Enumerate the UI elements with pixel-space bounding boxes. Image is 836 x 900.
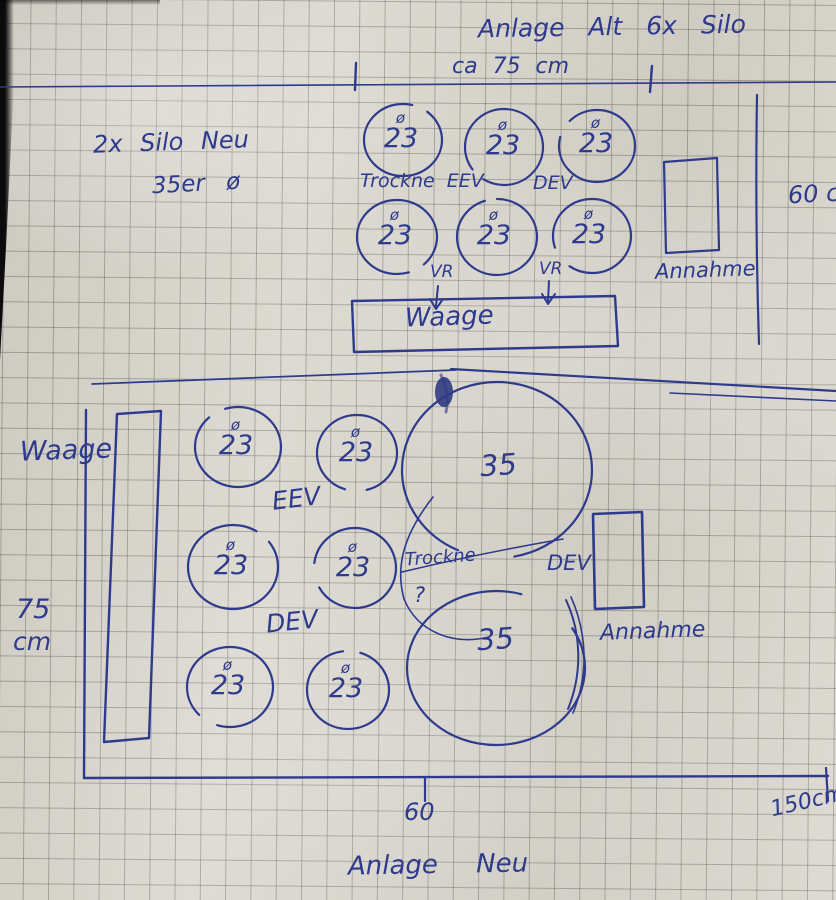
big-silo-value: 35 [479,449,518,482]
silo-label: ø 23 [572,208,606,249]
left-dimension-value: 75 [16,596,50,624]
dev-box-label: DEV [547,552,591,574]
lower-scale-label: Waage [20,435,113,467]
separator-line-short [670,393,836,401]
upper-right-boundary-line [756,95,759,344]
top-dimension-label: ca 75 cm [452,55,569,78]
silo-label: ø 23 [384,112,418,153]
lower-eev-label: EEV [271,483,323,515]
diameter-value: 23 [214,551,248,580]
silo-label: ø 23 [477,209,511,250]
silo-label: ø 23 [329,662,363,703]
right-dimension-label: 60 c [787,181,836,209]
lower-dev-label: DEV [265,606,320,638]
diameter-value: 23 [579,129,613,158]
big-silo-circle [407,591,585,745]
dryer-question-mark: ? [414,584,425,606]
diameter-value: 23 [336,553,370,582]
diameter-value: 23 [219,431,253,460]
separator-ink [92,369,836,412]
silo-label: ø 23 [214,539,248,580]
big-silo-value: 35 [476,623,515,656]
silo-label: ø 23 [378,209,412,250]
separator-line-right [451,369,836,391]
silo-label: ø 23 [336,541,370,582]
bottom-dimension-line [84,776,828,778]
lower-plan-ink [84,382,828,801]
dimension-tick-mid [650,66,652,92]
intake-box [664,158,719,253]
diameter-value: 23 [384,124,418,153]
lower-plan-title: Anlage Neu [348,850,529,880]
note-2x-silo-neu: 2x Silo Neu [93,127,250,158]
vr-label-right: VR [539,261,562,279]
diameter-value: 23 [572,220,606,249]
dev-box [593,512,644,609]
top-dimension-line [0,82,836,87]
left-dimension-unit: cm [13,629,51,655]
bottom-dimension-mid-label: 60 [404,800,435,825]
upper-scale-label: Waage [405,302,495,332]
diameter-value: 23 [211,671,245,700]
silo-label: ø 23 [579,117,613,158]
upper-intake-label: Annahme [655,257,756,283]
diameter-value: 23 [329,674,363,703]
silo-label: ø 23 [486,119,520,160]
upper-dev-label: DEV [533,174,573,194]
silo-label: ø 23 [211,659,245,700]
scale-box-tall [104,411,161,742]
vr-label-left: VR [430,264,453,282]
diameter-value: 23 [378,221,412,250]
vr-arrow-right [548,281,549,301]
dimension-tick-left [355,63,356,90]
diameter-value: 23 [477,221,511,250]
upper-dryer-eev-label: Trockne EEV [360,172,484,192]
note-35-diameter: 35er ø [151,170,240,199]
diameter-value: 23 [486,131,520,160]
lower-intake-label: Annahme [600,618,706,645]
diameter-value: 23 [339,438,373,467]
hand-drawn-silo-layout-sketch: Anlage Alt 6x Silo ca 75 cm 2x Silo Neu … [0,0,836,900]
big-silo-edge-stroke [566,600,578,709]
upper-plan-title: Anlage Alt 6x Silo [478,12,746,43]
separator-line-left [92,370,456,384]
silo-label: ø 23 [339,426,373,467]
silo-label: ø 23 [219,419,253,460]
